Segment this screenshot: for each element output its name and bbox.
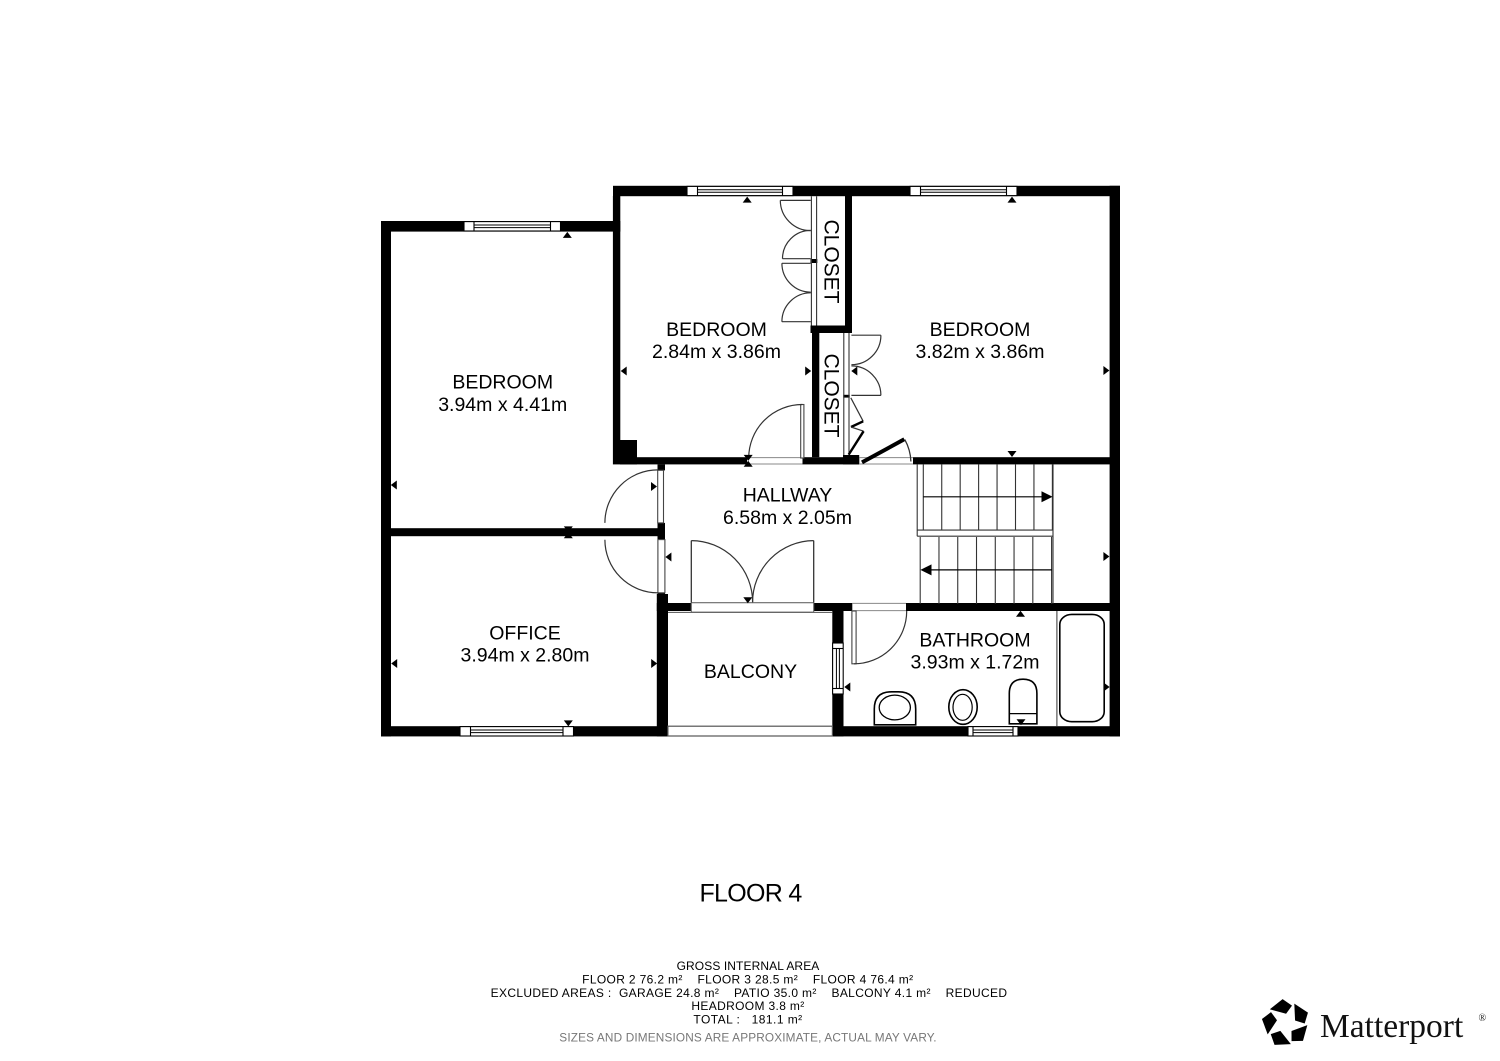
svg-text:6.58m x 2.05m: 6.58m x 2.05m [723, 507, 852, 529]
svg-text:CLOSET: CLOSET [820, 219, 843, 303]
svg-text:SIZES AND DIMENSIONS ARE APPRO: SIZES AND DIMENSIONS ARE APPROXIMATE, AC… [559, 1030, 936, 1044]
svg-text:BEDROOM: BEDROOM [452, 372, 553, 394]
svg-text:BALCONY: BALCONY [704, 661, 797, 683]
svg-text:HEADROOM 3.8 m²: HEADROOM 3.8 m² [691, 999, 804, 1013]
svg-text:EXCLUDED AREAS : GARAGE 24.8: EXCLUDED AREAS : GARAGE 24.8 m² PATIO 35… [491, 986, 1008, 1000]
svg-text:BATHROOM: BATHROOM [919, 630, 1030, 652]
svg-text:GROSS INTERNAL AREA: GROSS INTERNAL AREA [677, 959, 820, 973]
svg-text:Matterport: Matterport [1320, 1008, 1464, 1045]
svg-text:FLOOR 4: FLOOR 4 [699, 880, 802, 908]
svg-text:HALLWAY: HALLWAY [743, 485, 833, 507]
svg-text:OFFICE: OFFICE [489, 622, 561, 644]
svg-text:CLOSET: CLOSET [820, 353, 843, 437]
svg-text:3.94m x 4.41m: 3.94m x 4.41m [438, 394, 567, 416]
svg-text:FLOOR 2 76.2 m² FLOOR 3 28.: FLOOR 2 76.2 m² FLOOR 3 28.5 m² FLOOR 4 … [582, 972, 913, 986]
svg-text:BEDROOM: BEDROOM [666, 319, 767, 341]
svg-text:3.93m x 1.72m: 3.93m x 1.72m [911, 652, 1040, 674]
svg-text:®: ® [1479, 1013, 1487, 1024]
svg-text:3.94m x 2.80m: 3.94m x 2.80m [461, 645, 590, 667]
svg-text:2.84m x 3.86m: 2.84m x 3.86m [652, 341, 781, 363]
svg-text:BEDROOM: BEDROOM [930, 319, 1031, 341]
svg-text:3.82m x 3.86m: 3.82m x 3.86m [916, 341, 1045, 363]
svg-text:TOTAL : 181.1 m²: TOTAL : 181.1 m² [693, 1012, 802, 1026]
